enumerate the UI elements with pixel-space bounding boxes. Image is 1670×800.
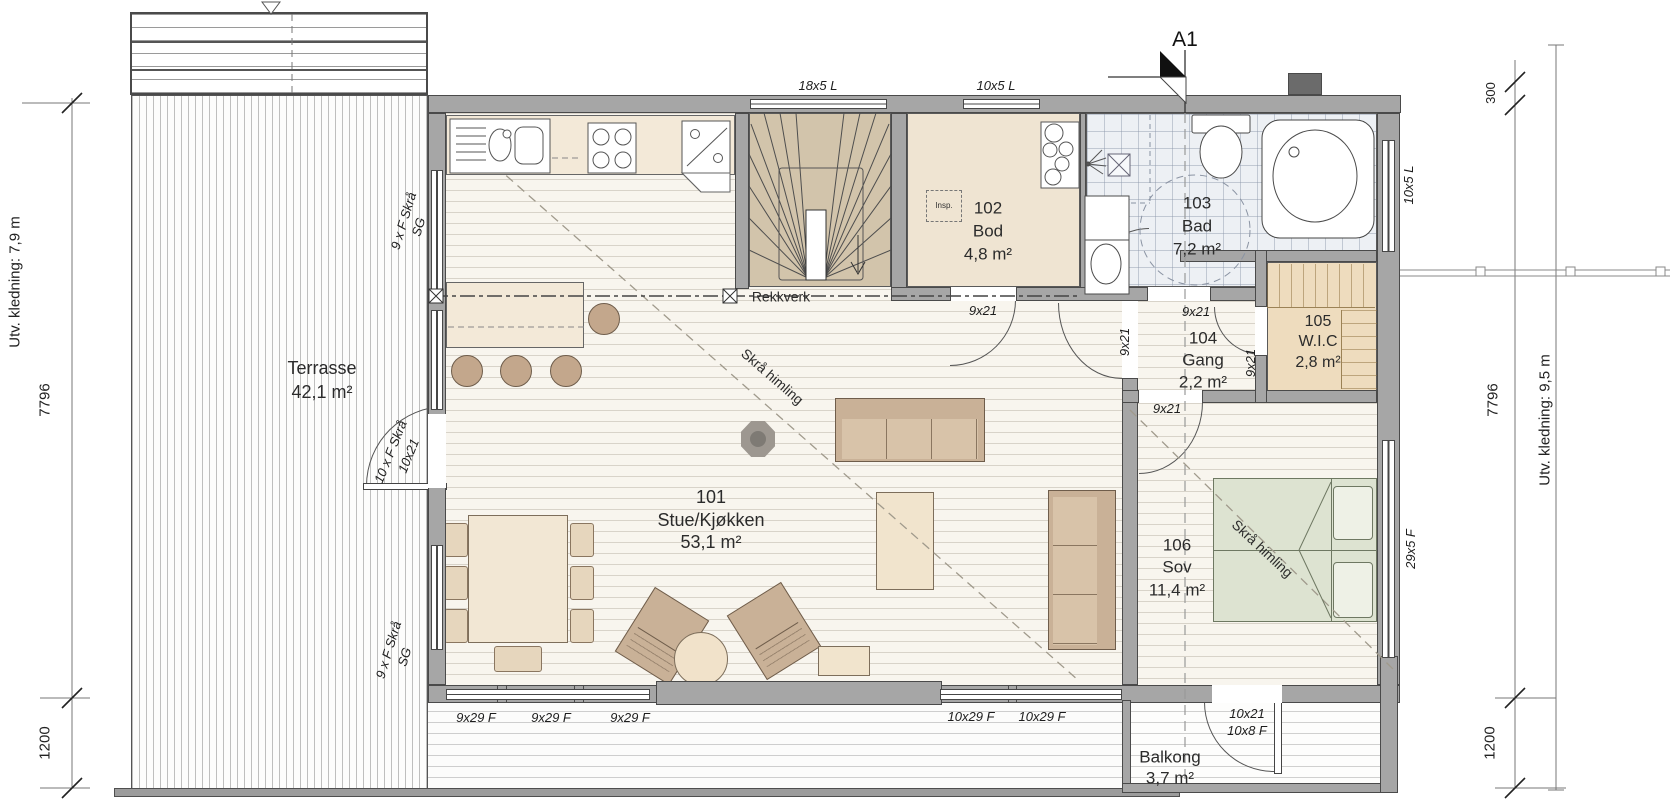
room-name-bedroom: Sov (1162, 556, 1191, 577)
wall-slab (656, 681, 942, 705)
stair-wall (735, 113, 749, 289)
window-label: 9x29 F (456, 710, 496, 726)
bedroom-wall (1202, 390, 1377, 403)
window (446, 689, 650, 700)
interior-door-label: 9x21 (1243, 349, 1259, 377)
dimension-right-offset: 300 (1483, 82, 1499, 104)
room-number-storage: 102 (974, 197, 1002, 218)
window-label: 10x5 L (976, 78, 1015, 94)
dining-chair (444, 609, 468, 643)
step-line (132, 41, 426, 43)
balcony-door-leaf (1274, 702, 1282, 774)
staircase (749, 113, 891, 287)
room-area-living: 53,1 m² (680, 531, 741, 554)
room-name-hall: Gang (1182, 349, 1224, 370)
sofa (1048, 490, 1116, 650)
balcony-railing (1122, 700, 1131, 793)
step-line (132, 69, 426, 71)
exterior-wall-north (428, 95, 1401, 113)
kitchen-counter (446, 115, 735, 175)
balcony-door-label: 10x21 (1229, 706, 1264, 722)
room-area-storage: 4,8 m² (964, 243, 1012, 264)
window (963, 99, 1040, 109)
room-number-living: 101 (696, 486, 726, 509)
door-opening (1212, 685, 1282, 703)
partition-wall (1122, 378, 1138, 685)
bar-stool (588, 303, 620, 335)
window-label: 9x29 F (610, 710, 650, 726)
dining-chair (570, 566, 594, 600)
room-area-bath: 7,2 m² (1173, 238, 1221, 259)
door-opening (951, 287, 1016, 301)
sofa (835, 398, 985, 462)
window-label: 10x5 L (1401, 165, 1417, 204)
balcony-railing (1380, 656, 1398, 793)
tv-bench (818, 646, 870, 676)
closet-shelving (1267, 264, 1375, 308)
window (431, 170, 443, 295)
dimension-left-lower: 1200 (37, 726, 56, 759)
window (1382, 440, 1395, 658)
cladding-label-right: Utv. kledning: 9,5 m (1537, 354, 1556, 485)
exterior-steps (130, 12, 428, 95)
room-number-closet: 105 (1305, 312, 1332, 332)
section-marker-label: A1 (1172, 27, 1198, 53)
dimension-left (22, 93, 90, 798)
bathroom-wall (1080, 113, 1086, 289)
door-opening (428, 414, 446, 488)
window (750, 99, 887, 109)
pillow (1333, 486, 1373, 540)
room-number-bath: 103 (1183, 192, 1211, 213)
window-label: 9x29 F (531, 710, 571, 726)
stair-wall (891, 113, 907, 289)
dimension-right-total: 7796 (1485, 383, 1504, 416)
terrace-name: Terrasse (287, 357, 356, 380)
interior-door-label: 9x21 (969, 303, 997, 319)
room-number-bedroom: 106 (1163, 534, 1191, 555)
door-opening (1255, 307, 1267, 355)
railing-label: Rekkverk (752, 288, 810, 306)
dining-chair (494, 646, 542, 672)
dimension-left-total: 7796 (37, 383, 56, 416)
closet-shelving (1341, 310, 1377, 389)
dining-chair (444, 566, 468, 600)
window (1382, 140, 1395, 252)
floor-plan-canvas: 101 Stue/Kjøkken 53,1 m² 102 Bod 4,8 m² … (0, 0, 1670, 800)
dimension-right-lower: 1200 (1482, 726, 1501, 759)
inspection-label: Insp. (935, 201, 952, 211)
deck-edge-strip (114, 788, 1180, 797)
dining-chair (570, 609, 594, 643)
door-opening (1148, 287, 1210, 301)
room-area-hall: 2,2 m² (1179, 371, 1227, 392)
corridor-wall (1016, 287, 1148, 301)
pillow (1333, 562, 1373, 618)
room-area-closet: 2,8 m² (1295, 353, 1340, 373)
window (431, 310, 443, 410)
window-label: 18x5 L (798, 78, 837, 94)
sofa-cushions (1053, 497, 1097, 645)
bar-table (446, 282, 584, 348)
coffee-table (876, 492, 934, 590)
round-side-table (674, 632, 728, 686)
window (431, 545, 443, 650)
interior-door-label: 9x21 (1117, 328, 1133, 356)
room-name-living: Stue/Kjøkken (657, 509, 764, 532)
bar-stool (451, 355, 483, 387)
sofa-cushions (842, 419, 978, 459)
room-name-closet: W.I.C (1298, 332, 1337, 352)
bar-stool (500, 355, 532, 387)
interior-door-label: 9x21 (1182, 304, 1210, 320)
cladding-label-left: Utv. kledning: 7,9 m (7, 216, 26, 347)
chimney-block (1288, 73, 1322, 95)
room-name-bath: Bad (1182, 215, 1212, 236)
dining-chair (570, 523, 594, 557)
window-label: 29x5 F (1403, 529, 1419, 569)
interior-door-label: 9x21 (1153, 401, 1181, 417)
room-area-bedroom: 11,4 m² (1149, 579, 1205, 600)
terrace-area: 42,1 m² (291, 381, 352, 404)
dining-chair (444, 523, 468, 557)
bedroom-wall (1122, 390, 1139, 403)
corridor-wall (891, 287, 951, 301)
dining-table (468, 515, 568, 643)
balcony-name: Balkong (1139, 746, 1200, 767)
bar-stool (550, 355, 582, 387)
closet-wall (1255, 250, 1267, 307)
window (940, 689, 1122, 700)
window-label: 10x29 F (1019, 709, 1066, 725)
balcony-area: 3,7 m² (1146, 767, 1194, 788)
balcony-window-label: 10x8 F (1227, 723, 1267, 739)
stove-flue (750, 431, 766, 447)
window-label: 10x29 F (948, 709, 995, 725)
room-name-storage: Bod (973, 220, 1003, 241)
fence-line (1400, 267, 1670, 276)
room-number-hall: 104 (1189, 327, 1217, 348)
